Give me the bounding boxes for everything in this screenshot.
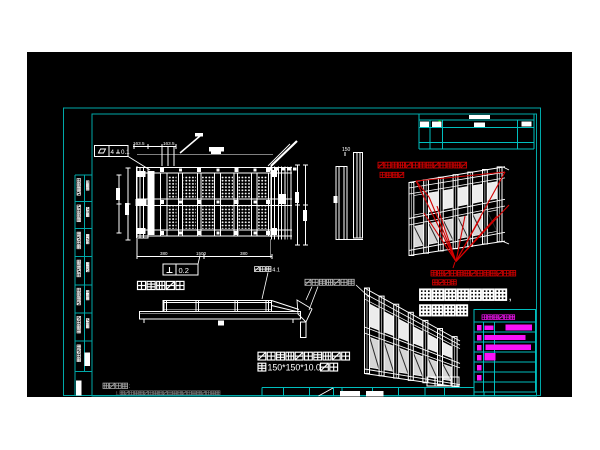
- svg-text:380: 380: [240, 251, 248, 256]
- svg-text:163.5: 163.5: [133, 141, 145, 146]
- svg-text:4: 4: [111, 149, 115, 156]
- svg-text:380: 380: [160, 251, 168, 256]
- svg-text:4.1: 4.1: [272, 268, 280, 274]
- svg-text:1.: 1.: [116, 391, 120, 396]
- svg-text:163.5: 163.5: [163, 141, 175, 146]
- svg-text:150*150*10.0: 150*150*10.0: [268, 363, 321, 373]
- svg-text:0.1: 0.1: [121, 149, 130, 156]
- svg-text:,: ,: [509, 289, 512, 303]
- svg-text:0.2: 0.2: [179, 266, 189, 275]
- svg-text:1500: 1500: [196, 251, 207, 256]
- svg-text:150: 150: [342, 147, 351, 153]
